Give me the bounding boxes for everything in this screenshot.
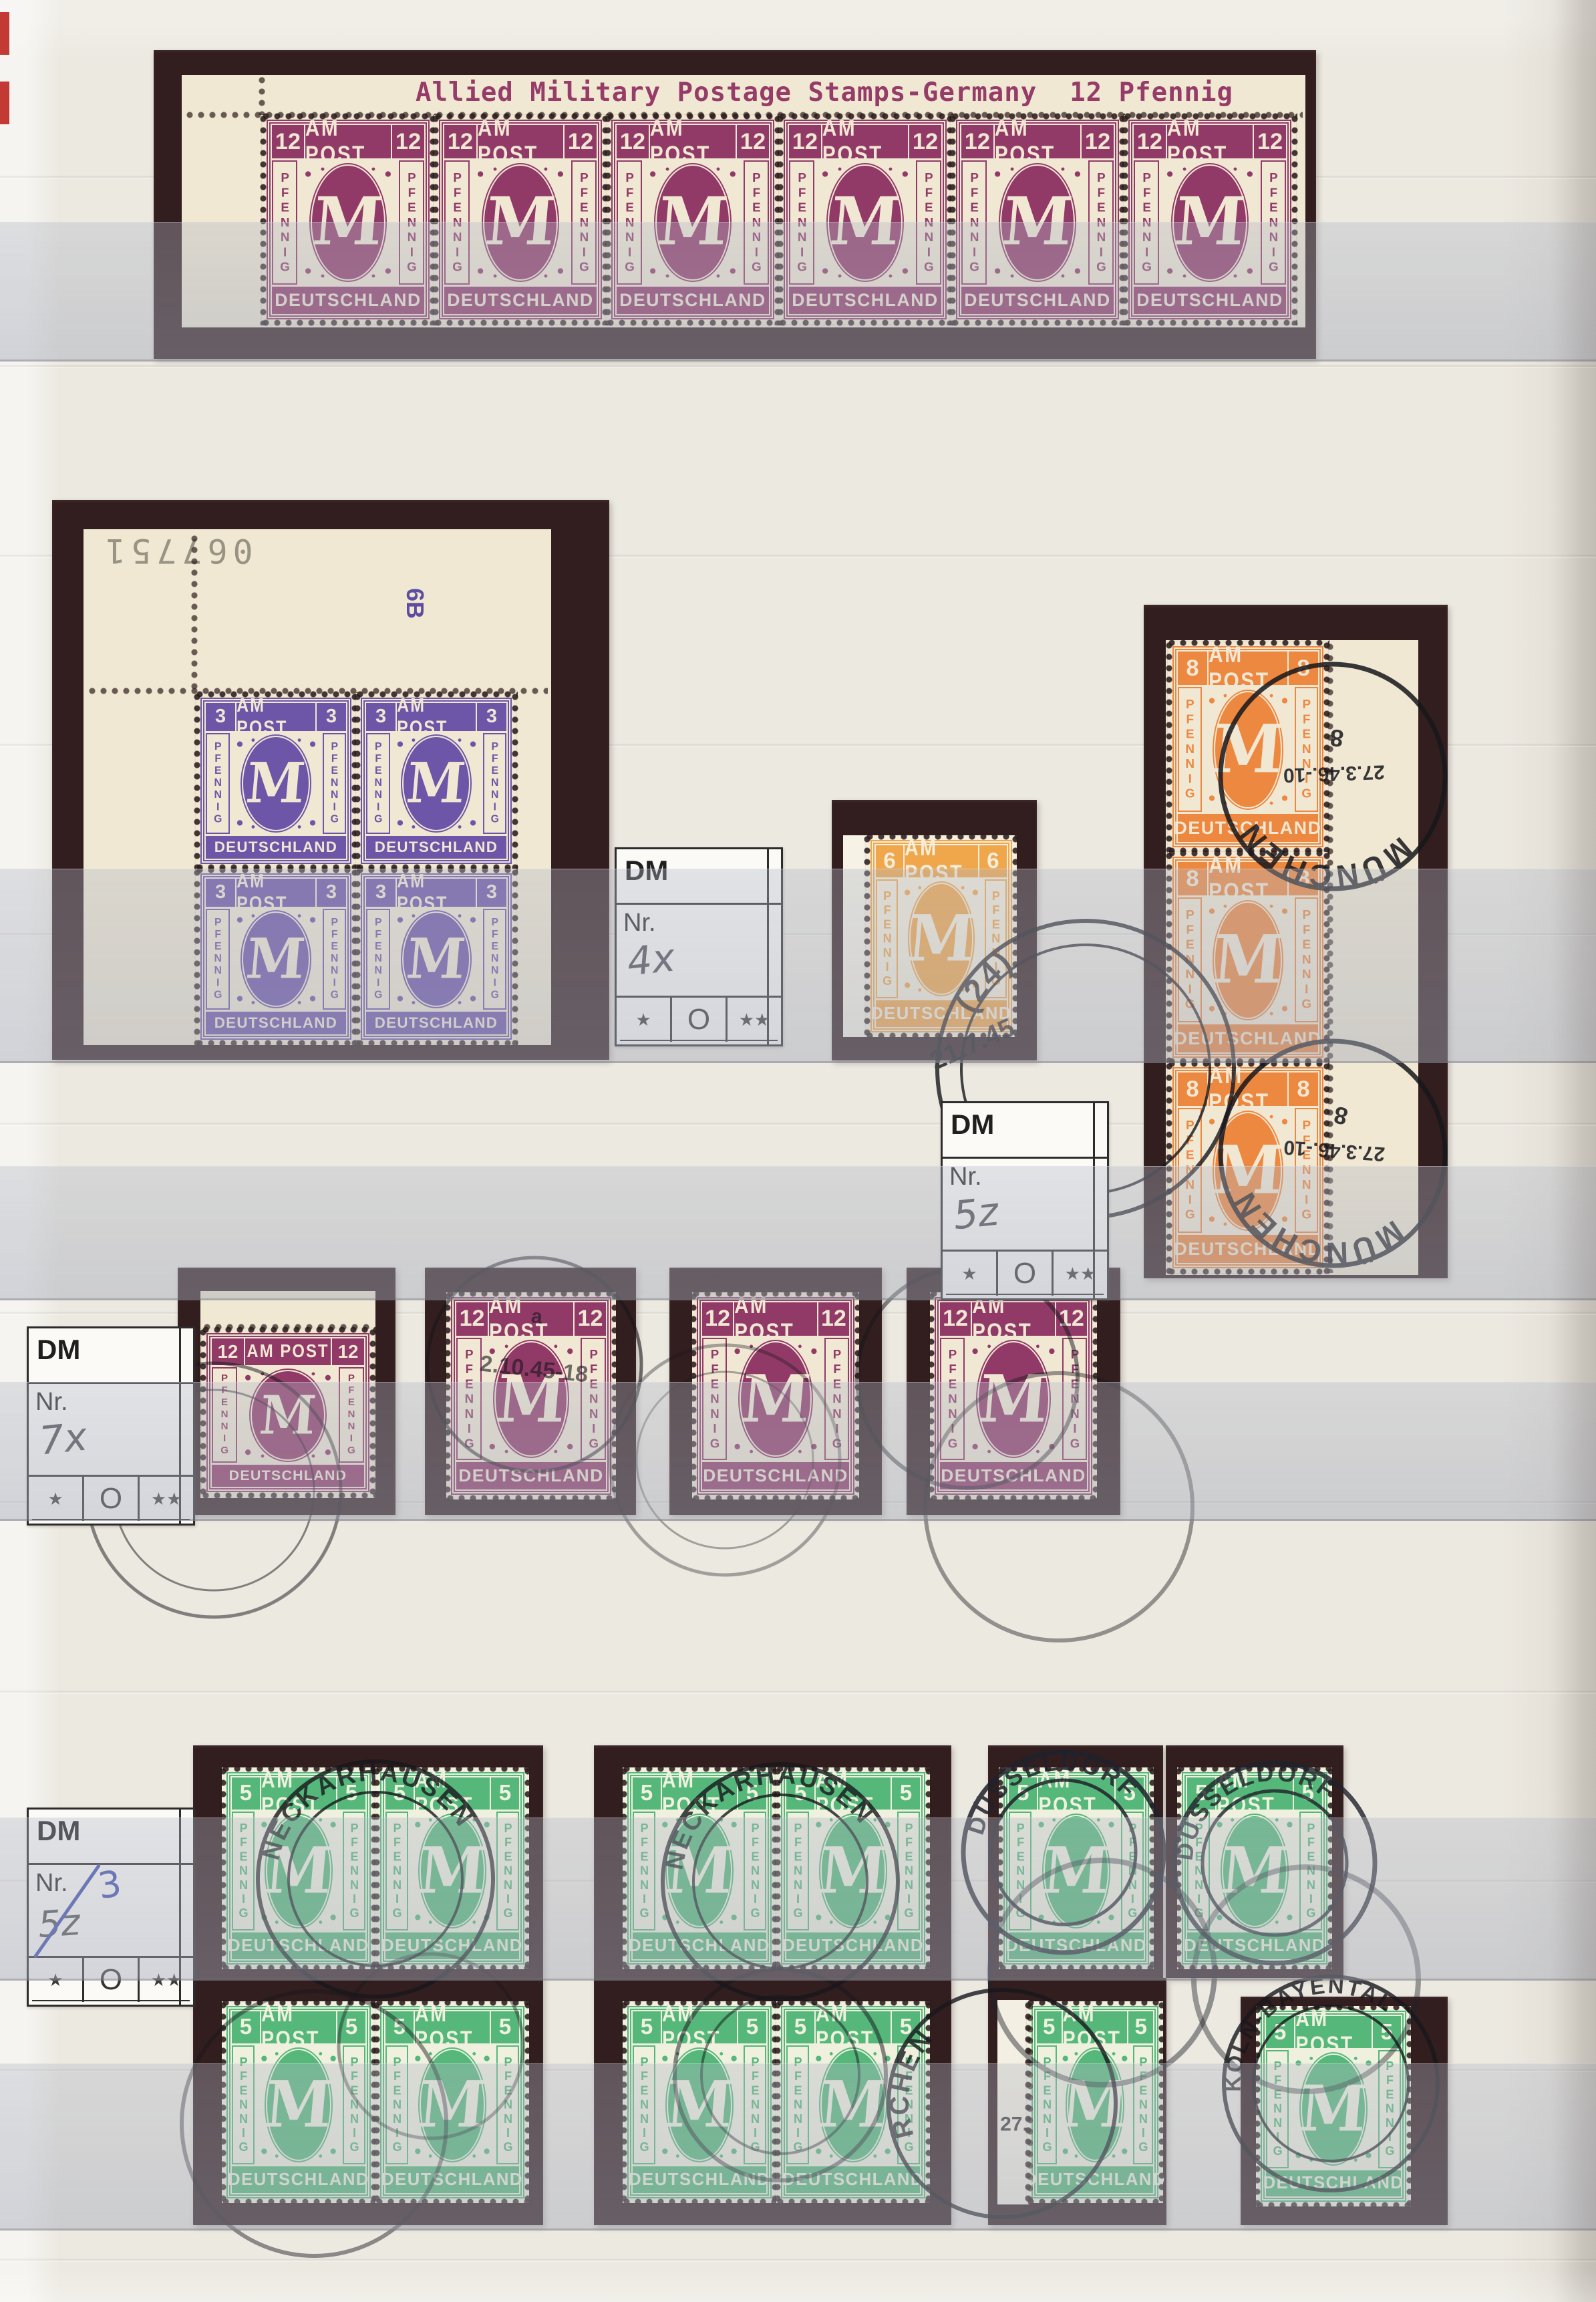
perforation-edge: [621, 1765, 778, 1773]
stamp-top-band: 12AM POST12: [940, 1302, 1087, 1336]
glassine-film-strip: [0, 222, 1596, 362]
perforation-line: [184, 111, 1303, 119]
perforation-line: [258, 75, 266, 115]
stamp-value: 12: [702, 1302, 734, 1336]
stamp-value: 12: [940, 1302, 972, 1336]
stamp-ampost-label: AM POST: [1038, 1775, 1114, 1812]
perforation-edge: [193, 692, 202, 870]
stamp-design: 8AM POST8PFENNIGMPFENNIGDEUTSCHLAND: [1172, 646, 1323, 847]
stamp-center-ornament: M: [392, 733, 481, 834]
stamp-top-band: 12AM POST12: [444, 125, 597, 158]
stamp-value: 12: [212, 1338, 245, 1365]
stamp-oval-medallion: M: [404, 737, 469, 830]
perforation-edge: [1166, 849, 1329, 858]
stamp-ampost-label: AM POST: [662, 1775, 737, 1812]
stamp-top-band: 12AM POST12: [702, 1302, 849, 1336]
stamp-value: 12: [444, 125, 478, 158]
stamp-value: 5: [336, 1777, 365, 1810]
stamp-ampost-label: AM POST: [397, 701, 476, 733]
stamp-value: 5: [786, 2011, 816, 2043]
perforation-edge: [775, 1999, 931, 2007]
stamp-ampost-label: AM POST: [478, 122, 563, 161]
stamp-ampost-label: AM POST: [1217, 1775, 1292, 1812]
stamp-value: 5: [232, 1777, 261, 1810]
stamp-ampost-label: AM POST: [489, 1300, 573, 1338]
stamp-ampost-label: AM POST: [1063, 2009, 1128, 2046]
plate-number: 6B: [401, 588, 429, 619]
stamp-value: 8: [1178, 652, 1209, 685]
stamp-value: 5: [232, 2011, 261, 2043]
label-currency: DM: [943, 1103, 1107, 1159]
stamp-value: 3: [315, 703, 346, 731]
stamp-top-band: 8AM POST8: [1178, 1072, 1318, 1106]
stamp-top-band: 8AM POST8: [1178, 652, 1318, 685]
page-edge-shading: [0, 2269, 1596, 2302]
stamp-pfennig-label: PFENNIG: [206, 733, 230, 834]
perforation-line: [202, 1323, 374, 1330]
stamp-ampost-label: AM POST: [822, 122, 908, 161]
stamp-top-band: 5AM POST5: [385, 1777, 519, 1810]
stamp-value: 5: [891, 2011, 920, 2043]
stamp-top-band: 3AM POST3: [206, 703, 346, 731]
perforation-edge: [621, 1999, 778, 2007]
stamp-value: 12: [331, 1338, 364, 1365]
stamp-top-band: 12AM POST12: [961, 125, 1114, 158]
perforation-edge: [864, 833, 1018, 841]
stamp-value: 12: [272, 125, 305, 158]
stamp-ampost-label: AM POST: [734, 1300, 817, 1338]
stamp-country-label: DEUTSCHLAND: [1178, 814, 1318, 842]
perforation-edge: [374, 1999, 530, 2007]
stamp-value: 5: [891, 1777, 920, 1810]
stockbook-slot-line: [0, 365, 1596, 367]
stamp-ampost-label: AM POST: [261, 2009, 336, 2046]
stamp-value: 5: [633, 1777, 662, 1810]
stamp-ampost-label: AM POST: [415, 2009, 490, 2046]
stamp-value: 12: [908, 125, 941, 158]
stamp-3pf-block-2: 3AM POST3PFENNIGMPFENNIGDEUTSCHLAND: [356, 693, 516, 869]
stamp-value: 8: [1287, 652, 1318, 685]
perforation-edge: [220, 1999, 377, 2007]
stamp-oval-medallion: M: [1215, 692, 1281, 807]
stamp-top-band: 5AM POST5: [232, 2011, 365, 2043]
binder-edge-mark: [0, 12, 9, 55]
stamp-value: 3: [366, 703, 397, 731]
stamp-value: 5: [385, 2011, 415, 2043]
perforation-edge: [1025, 1999, 1164, 2007]
stamp-ampost-label: AM POST: [245, 1336, 331, 1367]
stamp-top-band: 5AM POST5: [385, 2011, 519, 2043]
perforation-edge: [997, 1765, 1155, 1773]
stamp-monogram: M: [245, 756, 308, 811]
perforation-edge: [1255, 2003, 1412, 2012]
stockbook-page: Allied Military Postage Stamps-Germany 1…: [0, 0, 1596, 2302]
stamp-value: 12: [573, 1302, 606, 1336]
selvage-inscription: Allied Military Postage Stamps-Germany 1…: [416, 78, 1291, 108]
stamp-top-band: 5AM POST5: [232, 1777, 365, 1810]
stamp-value: 5: [336, 2011, 365, 2043]
perforation-edge: [1166, 639, 1329, 648]
stamp-value: 12: [736, 125, 769, 158]
stamp-value: 5: [737, 1777, 766, 1810]
stockbook-slot-line: [0, 1691, 1596, 1693]
perforation-edge: [1176, 1765, 1333, 1773]
stamp-ampost-label: AM POST: [650, 122, 736, 161]
perforation-edge: [220, 1765, 377, 1773]
stamp-pfennig-label: PFENNIG: [1178, 687, 1202, 812]
stamp-3pf-block-1: 3AM POST3PFENNIGMPFENNIGDEUTSCHLAND: [196, 693, 356, 869]
stamp-top-band: 5AM POST5: [1266, 2016, 1401, 2048]
stamp-top-band: 5AM POST5: [786, 1777, 920, 1810]
stamp-monogram: M: [1210, 716, 1285, 782]
stamp-value: 5: [633, 2011, 662, 2043]
stamp-ampost-label: AM POST: [972, 1300, 1055, 1338]
glassine-film-strip: [0, 2063, 1596, 2231]
stamp-value: 5: [1009, 1777, 1038, 1810]
stamp-top-band: 12AM POST12: [617, 125, 769, 158]
stamp-center-ornament: M: [1204, 687, 1293, 812]
stamp-ampost-label: AM POST: [662, 2009, 737, 2046]
stamp-value: 5: [1266, 2016, 1295, 2048]
stamp-value: 12: [1134, 125, 1167, 158]
stamp-top-band: 12AM POST12: [212, 1338, 364, 1365]
stamp-ampost-label: AM POST: [1209, 649, 1287, 688]
stamp-value: 12: [1055, 1302, 1087, 1336]
stamp-ampost-label: AM POST: [995, 122, 1080, 161]
stamp-ampost-label: AM POST: [1209, 1070, 1287, 1109]
stamp-top-band: 12AM POST12: [1134, 125, 1286, 158]
stamp-value: 3: [476, 703, 506, 731]
stamp-ampost-label: AM POST: [816, 1775, 891, 1812]
sheet-serial-number: 067751: [100, 531, 253, 570]
binder-edge-mark: [0, 82, 9, 124]
stamp-value: 5: [1372, 2016, 1401, 2048]
glassine-film-strip: [0, 1382, 1596, 1521]
stamp-country-label: DEUTSCHLAND: [206, 836, 346, 859]
stamp-value: 12: [1080, 125, 1114, 158]
glassine-film-strip: [0, 869, 1596, 1063]
glassine-film-strip: [0, 1166, 1596, 1300]
perforation-line: [87, 687, 548, 695]
perforation-edge: [775, 1765, 931, 1773]
stamp-value: 5: [786, 1777, 816, 1810]
stamp-design: 3AM POST3PFENNIGMPFENNIGDEUTSCHLAND: [361, 698, 512, 864]
stamp-top-band: 5AM POST5: [786, 2011, 920, 2043]
stamp-value: 5: [490, 2011, 519, 2043]
stamp-ampost-label: AM POST: [1295, 2013, 1371, 2050]
stamp-oval-medallion: M: [243, 737, 309, 830]
stamp-value: 3: [206, 703, 236, 731]
stamp-pfennig-label: PFENNIG: [1295, 687, 1319, 812]
stamp-top-band: 5AM POST5: [1009, 1777, 1144, 1810]
stamp-pfennig-label: PFENNIG: [366, 733, 390, 834]
stamp-value: 8: [1178, 1072, 1209, 1106]
stamp-pfennig-label: PFENNIG: [323, 733, 347, 834]
stamp-top-band: 12AM POST12: [456, 1302, 606, 1336]
perforation-edge: [510, 692, 519, 870]
stamp-ampost-label: AM POST: [261, 1775, 336, 1812]
stamp-top-band: 3AM POST3: [366, 703, 506, 731]
stamp-value: 12: [617, 125, 650, 158]
stamp-monogram: M: [405, 756, 468, 811]
perforation-line: [190, 533, 198, 691]
stamp-value: 5: [1293, 1777, 1322, 1810]
label-currency: DM: [29, 1328, 193, 1384]
stamp-center-ornament: M: [232, 733, 321, 834]
perforation-edge: [374, 1765, 530, 1773]
stamp-value: 5: [1037, 2011, 1063, 2043]
stamp-value: 5: [1114, 1777, 1144, 1810]
stamp-top-band: 5AM POST5: [633, 1777, 766, 1810]
stamp-ampost-label: AM POST: [305, 122, 391, 161]
perforation-edge: [353, 692, 362, 870]
stamp-value: 12: [391, 125, 424, 158]
stamp-country-label: DEUTSCHLAND: [366, 836, 506, 859]
stamp-design: 3AM POST3PFENNIGMPFENNIGDEUTSCHLAND: [200, 698, 351, 864]
stamp-ampost-label: AM POST: [1167, 122, 1253, 161]
stamp-8pf-strip-1: 8AM POST8PFENNIGMPFENNIGDEUTSCHLAND: [1168, 641, 1328, 852]
stamp-value: 5: [737, 2011, 766, 2043]
stamp-ampost-label: AM POST: [816, 2009, 891, 2046]
perforation-edge: [1165, 640, 1174, 853]
stamp-top-band: 5AM POST5: [633, 2011, 766, 2043]
stamp-value: 12: [563, 125, 597, 158]
stamp-value: 5: [385, 1777, 415, 1810]
stamp-value: 12: [1253, 125, 1286, 158]
stamp-top-band: 5AM POST5: [1037, 2011, 1153, 2043]
stamp-value: 12: [961, 125, 995, 158]
stamp-ampost-label: AM POST: [236, 701, 315, 733]
stamp-value: 12: [456, 1302, 489, 1336]
glassine-film-strip: [0, 1818, 1596, 1981]
stamp-top-band: 12AM POST12: [272, 125, 424, 158]
stamp-top-band: 12AM POST12: [789, 125, 941, 158]
stamp-value: 8: [1287, 1072, 1318, 1106]
stamp-value: 5: [1187, 1777, 1217, 1810]
stamp-value: 12: [789, 125, 822, 158]
stamp-value: 5: [490, 1777, 519, 1810]
stamp-value: 12: [817, 1302, 849, 1336]
stamp-ampost-label: AM POST: [415, 1775, 490, 1812]
stockbook-slot-line: [0, 2259, 1596, 2261]
stamp-pfennig-label: PFENNIG: [483, 733, 507, 834]
stamp-top-band: 5AM POST5: [1187, 1777, 1322, 1810]
stamp-value: 5: [1127, 2011, 1153, 2043]
